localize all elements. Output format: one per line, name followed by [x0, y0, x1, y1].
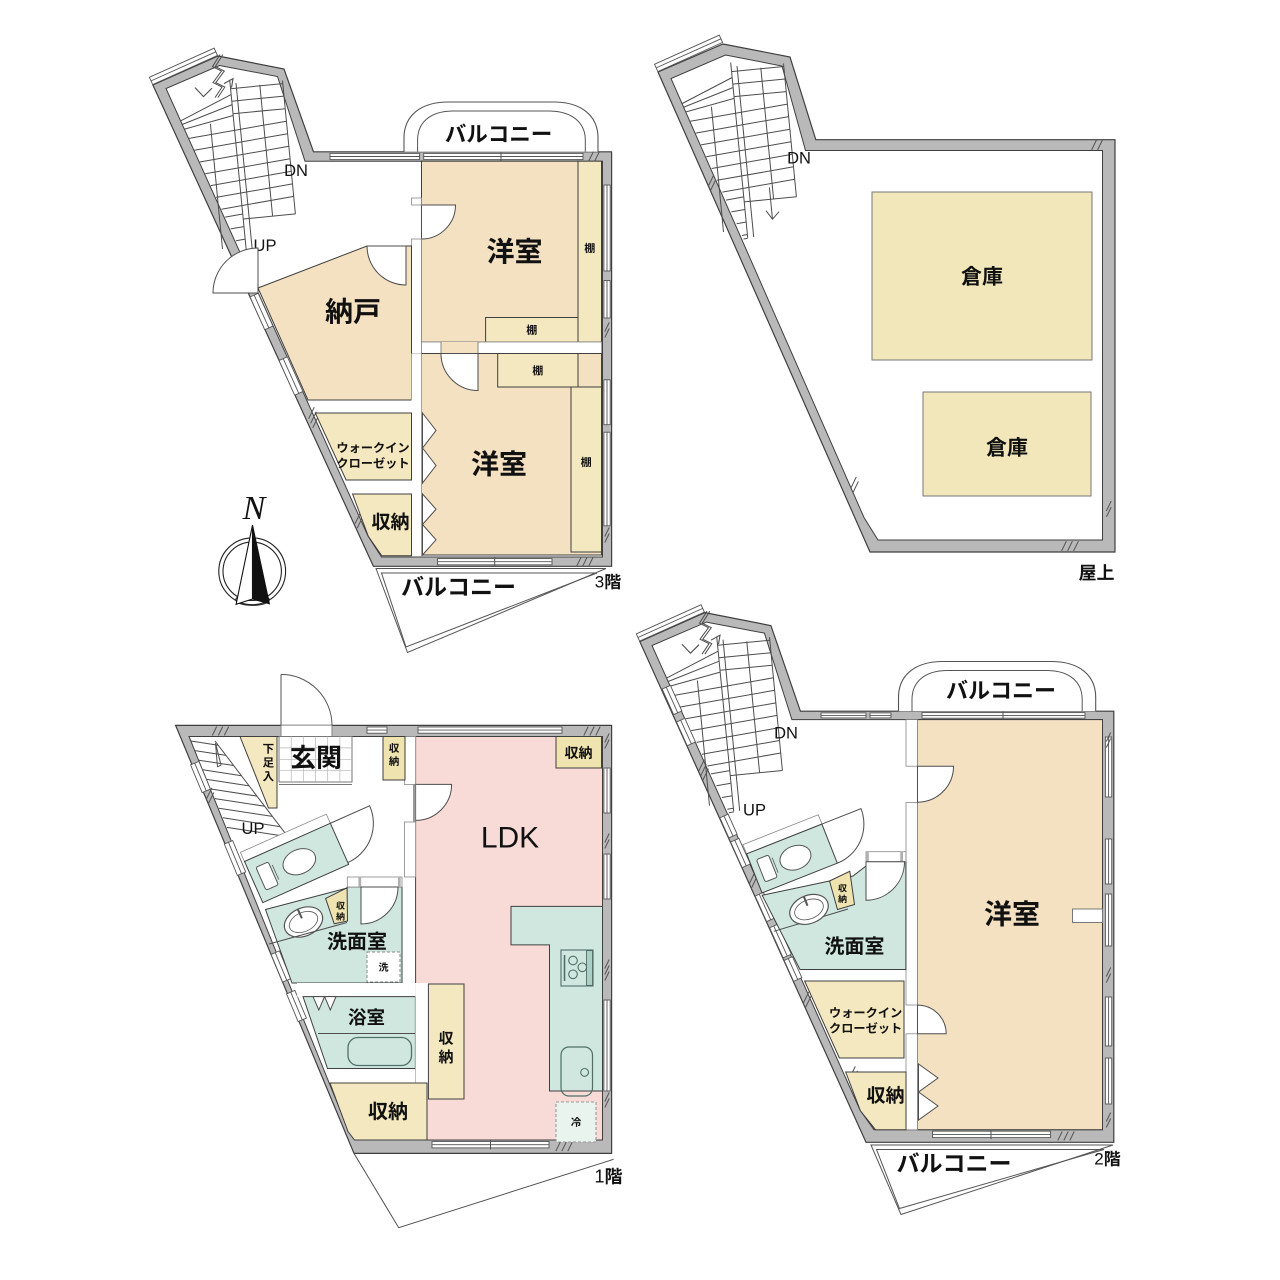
svg-text:1: 1: [594, 1166, 604, 1186]
svg-text:LDK: LDK: [481, 822, 539, 855]
svg-text:DN: DN: [774, 724, 798, 742]
svg-text:UP: UP: [743, 801, 766, 819]
svg-text:2: 2: [1094, 1150, 1103, 1169]
svg-text:UP: UP: [242, 820, 265, 838]
svg-text:DN: DN: [787, 149, 811, 167]
svg-text:DN: DN: [284, 162, 308, 180]
svg-text:N: N: [242, 490, 268, 527]
svg-text:3: 3: [595, 573, 604, 592]
